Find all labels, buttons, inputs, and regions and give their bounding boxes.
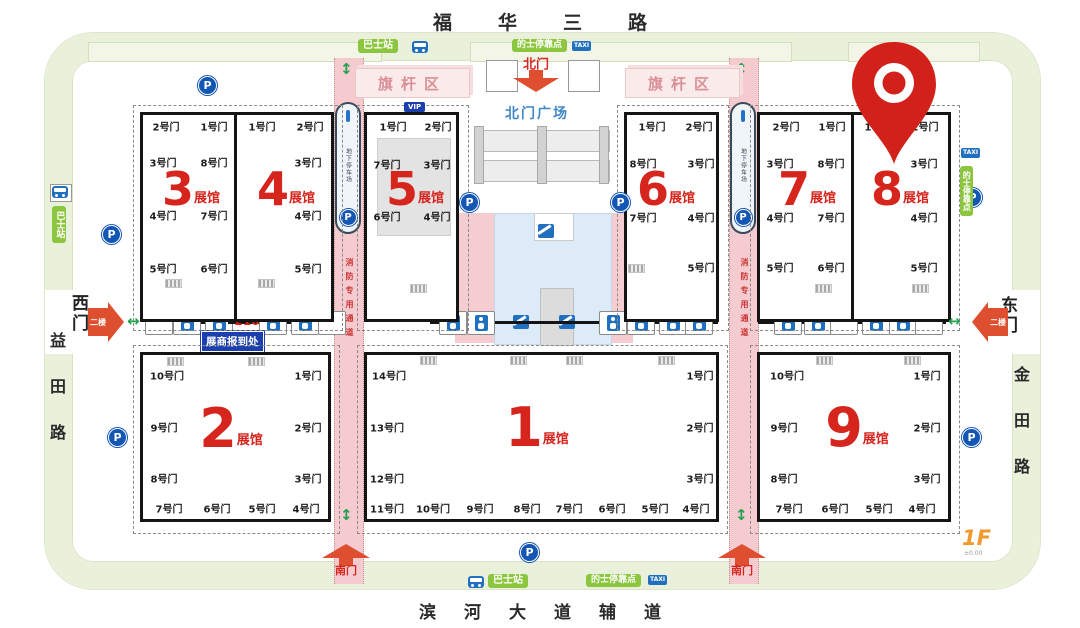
- parking-icon: P: [520, 543, 539, 562]
- door-label: 7号门: [201, 208, 228, 223]
- door-label: 5号门: [688, 260, 715, 275]
- door-icon: [475, 315, 488, 331]
- south-gate-arrow: [322, 544, 370, 558]
- parking-icon: P: [735, 209, 752, 226]
- door-label: 4号门: [295, 208, 322, 223]
- stairs-icon: [258, 279, 275, 288]
- ramp-icon: [346, 110, 350, 122]
- parking-icon: P: [611, 193, 630, 212]
- door-label: 2号门: [687, 420, 714, 435]
- stairs-icon: [420, 356, 437, 365]
- door-label: 4号门: [150, 208, 177, 223]
- road-east: 金田路: [1008, 366, 1032, 504]
- door-label: 9号门: [467, 501, 494, 516]
- door-label: 8号门: [818, 156, 845, 171]
- door-label: 4号门: [688, 210, 715, 225]
- east-gate-arrow: [972, 302, 988, 342]
- bus-stop-label: 巴士站: [488, 574, 528, 588]
- north-gate-arrow: [513, 78, 559, 92]
- door-label: 8号门: [771, 471, 798, 486]
- south-gate-label: 南门: [731, 562, 753, 578]
- door-label: 11号门: [370, 501, 404, 516]
- door-label: 4号门: [683, 501, 710, 516]
- door-label: 3号门: [150, 155, 177, 170]
- hall-7-label: 7展馆: [778, 171, 836, 209]
- exhibition-center-map: 福华三路 滨河大道辅道 益田路 金田路 消防专用通道 消防专用通道 ↕ ↕ ↕ …: [0, 0, 1080, 628]
- door-label: 3号门: [767, 156, 794, 171]
- door-label: 5号门: [866, 501, 893, 516]
- stairs-icon: [628, 264, 645, 273]
- stairs-icon: [248, 357, 265, 366]
- door-label: 8号门: [151, 471, 178, 486]
- hall-5-label: 5展馆: [386, 171, 444, 209]
- taxi-icon: TAXI: [572, 41, 591, 51]
- door-label: 6号门: [822, 501, 849, 516]
- door-label: 2号门: [297, 119, 324, 134]
- door-label: 1号门: [201, 119, 228, 134]
- door-label: 3号门: [295, 471, 322, 486]
- escalator-icon: [538, 224, 554, 238]
- hall-2-label: 2展馆: [199, 407, 263, 451]
- structure-column: [599, 126, 609, 184]
- bus-stop-label: 巴士站: [52, 206, 66, 243]
- door-label: 10号门: [416, 501, 450, 516]
- stairs-icon: [658, 356, 675, 365]
- door-label: 2号门: [773, 119, 800, 134]
- hall-1-label: 1展馆: [505, 406, 569, 450]
- door-label: 9号门: [151, 420, 178, 435]
- two-way-arrow-icon: ↕: [340, 62, 353, 77]
- door-label: 7号门: [556, 501, 583, 516]
- stairs-icon: [510, 356, 527, 365]
- hall-9-label: 9展馆: [825, 406, 889, 450]
- bus-stop-label: 巴士站: [358, 39, 398, 53]
- bus-icon: [468, 576, 484, 588]
- stairs-icon: [816, 356, 833, 365]
- parking-icon: P: [460, 193, 479, 212]
- door-label: 6号门: [599, 501, 626, 516]
- location-pin: [846, 38, 942, 170]
- road-south: 滨河大道辅道: [391, 598, 689, 623]
- ramp-label: 地下停车场: [739, 148, 748, 183]
- bus-icon: [412, 41, 428, 53]
- door-label: 7号门: [818, 210, 845, 225]
- door-label: 4号门: [767, 210, 794, 225]
- door-label: 5号门: [249, 501, 276, 516]
- door-label: 10号门: [770, 368, 804, 383]
- door-label: 14号门: [372, 368, 406, 383]
- stairs-icon: [167, 357, 184, 366]
- south-gate-label: 南门: [335, 562, 357, 578]
- door-label: 13号门: [370, 420, 404, 435]
- two-way-arrow-icon: ↔: [127, 314, 140, 329]
- hall-8-label: 8展馆: [871, 171, 929, 209]
- hall-3-label: 3展馆: [162, 171, 220, 209]
- taxi-stop-label: 的士停靠点: [960, 166, 973, 216]
- door-label: 5号门: [911, 260, 938, 275]
- two-way-arrow-icon: ↕: [735, 508, 748, 523]
- stairs-icon: [904, 356, 921, 365]
- ramp-icon: [741, 110, 745, 122]
- taxi-stop-label: 的士停靠点: [586, 574, 641, 587]
- door-label: 3号门: [914, 471, 941, 486]
- door-label: 5号门: [767, 260, 794, 275]
- door-label: 2号门: [914, 420, 941, 435]
- door-label: 6号门: [201, 261, 228, 276]
- door-label: 4号门: [424, 209, 451, 224]
- two-way-arrow-icon: ↔: [948, 314, 961, 329]
- west-gate-arrow: [108, 302, 124, 342]
- door-label: 1号门: [914, 368, 941, 383]
- door-label: 6号门: [374, 209, 401, 224]
- door-label: 8号门: [630, 156, 657, 171]
- taxi-stop-label: 的士停靠点: [512, 39, 567, 52]
- door-label: 4号门: [293, 501, 320, 516]
- door-label: 10号门: [150, 368, 184, 383]
- door-label: 1号门: [687, 368, 714, 383]
- door-label: 3号门: [424, 157, 451, 172]
- door-label: 12号门: [370, 471, 404, 486]
- gate-structure: [568, 60, 600, 92]
- vip-entrance-tag: VIP: [404, 102, 425, 112]
- stairs-icon: [912, 284, 929, 293]
- door-label: 5号门: [642, 501, 669, 516]
- door-label: 2号门: [153, 119, 180, 134]
- stairs-icon: [410, 284, 427, 293]
- parking-icon: P: [962, 428, 981, 447]
- parking-icon: P: [102, 225, 121, 244]
- door-label: 8号门: [201, 155, 228, 170]
- door-label: 2号门: [686, 119, 713, 134]
- ramp-label: 地下停车场: [344, 148, 353, 183]
- door-label: 3号门: [687, 471, 714, 486]
- door-label: 9号门: [771, 420, 798, 435]
- road-north: 福华三路: [387, 8, 693, 35]
- door-label: 4号门: [909, 501, 936, 516]
- door-label: 1号门: [819, 119, 846, 134]
- second-floor-tag: 二楼: [990, 317, 1006, 328]
- flag-area: 旗杆区: [355, 68, 470, 98]
- door-label: 7号门: [156, 501, 183, 516]
- door-label: 2号门: [295, 420, 322, 435]
- door-label: 2号门: [425, 119, 452, 134]
- fire-lane-label: 消防专用通道: [739, 258, 750, 342]
- floor-level: 1F: [962, 528, 991, 549]
- two-way-arrow-icon: ↕: [340, 508, 353, 523]
- door-label: 5号门: [150, 261, 177, 276]
- stairs-icon: [566, 356, 583, 365]
- east-gate-arrow: 二楼: [988, 308, 1008, 336]
- second-floor-tag: 二楼: [90, 317, 106, 328]
- structure-column: [474, 126, 484, 184]
- stairs-icon: [815, 284, 832, 293]
- plaza-name: 北门广场: [505, 103, 569, 123]
- door-label: 7号门: [776, 501, 803, 516]
- door-label: 3号门: [295, 155, 322, 170]
- door-label: 1号门: [249, 119, 276, 134]
- door-label: 8号门: [514, 501, 541, 516]
- door-label: 7号门: [374, 157, 401, 172]
- door-label: 7号门: [630, 210, 657, 225]
- door-label: 3号门: [688, 156, 715, 171]
- floor-elevation: ±0.00: [964, 550, 982, 557]
- door-label: 4号门: [911, 210, 938, 225]
- door-label: 1号门: [380, 119, 407, 134]
- bus-icon: [52, 186, 68, 198]
- door-label: 1号门: [639, 119, 666, 134]
- hall-4-label: 4展馆: [257, 171, 315, 209]
- south-gate-arrow: [718, 544, 766, 558]
- structure-column: [537, 126, 547, 184]
- parking-icon: P: [198, 76, 217, 95]
- taxi-icon: TAXI: [961, 148, 980, 158]
- parking-icon: P: [108, 428, 127, 447]
- hall-6-label: 6展馆: [637, 171, 695, 209]
- hall-3-4-divider: [234, 112, 237, 322]
- taxi-icon: TAXI: [648, 575, 667, 585]
- door-block: [467, 311, 495, 335]
- stairs-icon: [165, 279, 182, 288]
- door-label: 5号门: [295, 261, 322, 276]
- flag-area: 旗杆区: [625, 68, 740, 98]
- door-label: 6号门: [204, 501, 231, 516]
- west-gate-arrow: 二楼: [88, 308, 108, 336]
- door-label: 1号门: [295, 368, 322, 383]
- door-label: 6号门: [818, 260, 845, 275]
- road-west: 益田路: [44, 332, 68, 470]
